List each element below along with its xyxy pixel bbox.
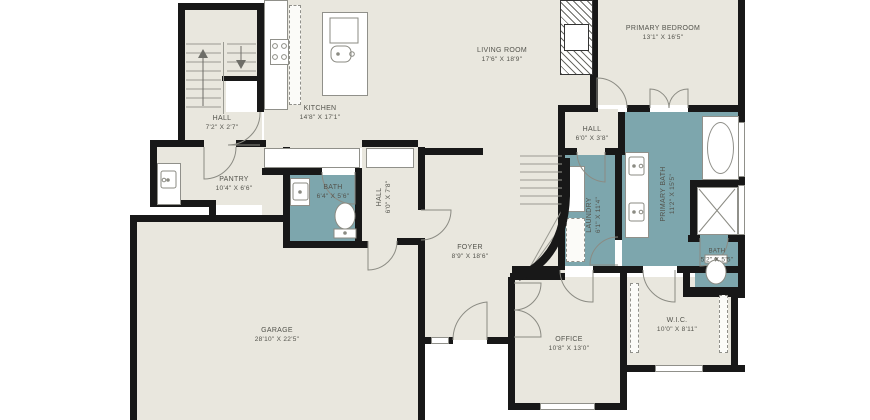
door-wic xyxy=(643,270,675,302)
door-bedroom-double-l xyxy=(650,89,669,108)
room-name: HALL xyxy=(576,125,609,134)
room-name: PRIMARY BEDROOM xyxy=(626,24,700,33)
fixtures-overlay xyxy=(0,0,870,420)
room-label-hall-primary: HALL 6'0" X 3'8" xyxy=(576,125,609,143)
door-arcs xyxy=(204,78,728,340)
room-dims: 10'0" X 8'11" xyxy=(657,325,697,334)
room-dims: 14'8" X 17'1" xyxy=(300,113,341,122)
shower-x xyxy=(699,189,735,232)
room-name: LAUNDRY xyxy=(585,197,594,233)
room-dims: 13'1" X 16'5" xyxy=(626,33,700,42)
room-label-hall-mud: HALL 6'0" X 7'8" xyxy=(375,181,393,214)
room-name: OFFICE xyxy=(549,335,590,344)
room-dims: 28'10" X 22'5" xyxy=(255,335,300,344)
room-label-hall-stairs: HALL 7'2" X 2'7" xyxy=(206,114,239,132)
room-dims: 6'0" X 7'8" xyxy=(384,181,393,214)
room-name: BATH xyxy=(701,249,734,257)
room-name: BATH xyxy=(317,183,350,192)
room-name: W.I.C. xyxy=(657,316,697,325)
room-dims: 10'4" X 6'6" xyxy=(216,184,253,193)
door-bedroom-double-r xyxy=(669,89,688,108)
sanitary-fixtures xyxy=(161,18,735,284)
room-label-living-room: LIVING ROOM 17'6" X 18'9" xyxy=(477,46,527,64)
room-name: LIVING ROOM xyxy=(477,46,527,55)
room-label-garage: GARAGE 28'10" X 22'5" xyxy=(255,326,300,344)
room-label-pantry: PANTRY 10'4" X 6'6" xyxy=(216,175,253,193)
room-label-primary-bedroom: PRIMARY BEDROOM 13'1" X 16'5" xyxy=(626,24,700,42)
door-bedroom xyxy=(597,78,627,108)
room-name: GARAGE xyxy=(255,326,300,335)
room-label-wic: W.I.C. 10'0" X 8'11" xyxy=(657,316,697,334)
room-dims: 11'2" X 15'5" xyxy=(668,166,677,221)
room-dims: 10'8" X 13'0" xyxy=(549,344,590,353)
room-name: HALL xyxy=(206,114,239,123)
room-dims: 5'2" X 5'5" xyxy=(701,256,734,264)
door-front-entry xyxy=(453,302,487,340)
door-laundry-bath xyxy=(590,237,618,265)
burner xyxy=(282,55,287,60)
toilet-icon xyxy=(706,260,726,284)
door-laundry xyxy=(577,152,605,182)
door-foyer xyxy=(421,210,451,240)
burner xyxy=(273,44,278,49)
island-cooktop xyxy=(330,18,358,43)
stairs-down-arrow xyxy=(236,60,246,69)
room-dims: 6'1" X 11'4" xyxy=(594,197,603,233)
sink-icon xyxy=(629,157,644,175)
room-label-foyer: FOYER 8'9" X 18'6" xyxy=(452,243,489,261)
room-name: PRIMARY BATH xyxy=(659,166,668,221)
room-dims: 8'9" X 18'6" xyxy=(452,252,489,261)
burner xyxy=(273,55,278,60)
sink-icon xyxy=(629,203,644,221)
door-garage xyxy=(368,241,397,270)
room-name: FOYER xyxy=(452,243,489,252)
door-closet-bifold-b xyxy=(514,310,541,337)
room-label-office: OFFICE 10'8" X 13'0" xyxy=(549,335,590,353)
room-label-bath-small: BATH 5'2" X 5'5" xyxy=(701,249,734,264)
room-name: HALL xyxy=(375,181,384,214)
door-office xyxy=(560,270,593,302)
room-dims: 6'4" X 5'6" xyxy=(317,192,350,201)
room-label-bath: BATH 6'4" X 5'6" xyxy=(317,183,350,201)
room-label-kitchen: KITCHEN 14'8" X 17'1" xyxy=(300,104,341,122)
island-sink-icon xyxy=(331,46,351,62)
curved-stair-wall xyxy=(518,158,566,277)
room-dims: 7'2" X 2'7" xyxy=(206,123,239,132)
room-dims: 17'6" X 18'9" xyxy=(477,55,527,64)
door-closet-bifold-a xyxy=(514,283,541,310)
room-label-laundry: LAUNDRY 6'1" X 11'4" xyxy=(585,197,603,233)
floor-plan: LIVING ROOM 17'6" X 18'9" PRIMARY BEDROO… xyxy=(0,0,870,420)
burner xyxy=(282,44,287,49)
stairs-main xyxy=(186,42,256,114)
toilet-icon xyxy=(335,203,355,229)
room-dims: 6'0" X 3'8" xyxy=(576,134,609,143)
room-label-primary-bath: PRIMARY BATH 11'2" X 15'5" xyxy=(659,166,677,221)
room-name: PANTRY xyxy=(216,175,253,184)
room-name: KITCHEN xyxy=(300,104,341,113)
